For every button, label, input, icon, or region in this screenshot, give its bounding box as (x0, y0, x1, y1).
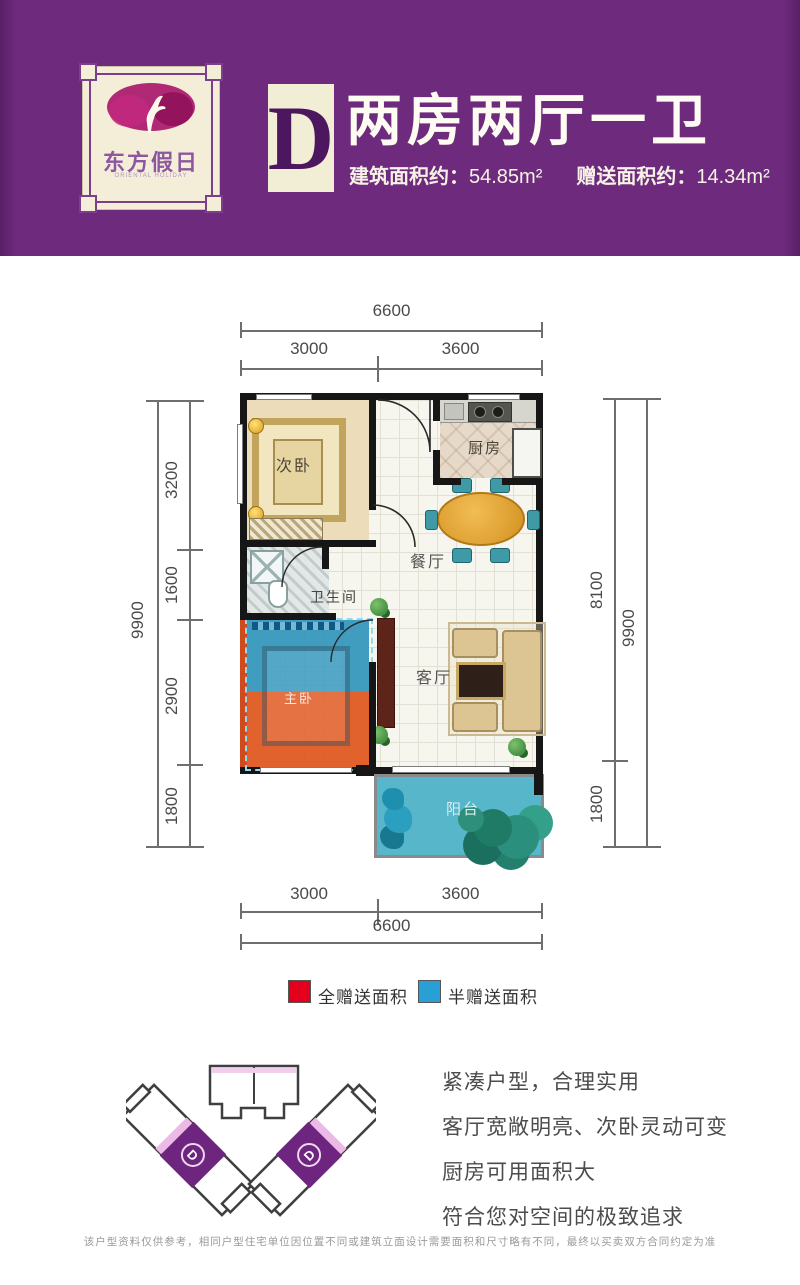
label-balcony: 阳台 (446, 798, 480, 819)
window (237, 424, 243, 504)
balcony-slider-door (392, 766, 510, 773)
wall (240, 540, 376, 547)
dim-top-left: 3000 (240, 339, 378, 359)
dim-tick (377, 356, 379, 382)
label-bedroom2: 次卧 (276, 452, 312, 476)
dim-left-seg2: 2900 (162, 636, 182, 756)
label-master: 主卧 (284, 688, 314, 707)
wall (433, 478, 461, 485)
stove-burner (492, 406, 504, 418)
dim-tick (602, 760, 628, 762)
window (260, 767, 352, 773)
dim-left-seg0: 3200 (162, 420, 182, 540)
sofa (502, 630, 542, 732)
building-key-plan: D D (126, 1050, 376, 1230)
dim-top-right: 3600 (378, 339, 543, 359)
tv-cabinet (377, 618, 395, 728)
dim-line (189, 400, 191, 848)
dim-line (614, 398, 616, 848)
dining-table (437, 492, 525, 546)
area-info: 建筑面积约：54.85m²赠送面积约：14.34m² (349, 160, 789, 189)
label-bathroom: 卫生间 (310, 587, 358, 607)
dim-tick (541, 360, 543, 376)
dim-line (646, 398, 648, 848)
wall (369, 393, 376, 510)
label-kitchen: 厨房 (468, 437, 502, 458)
dining-chair (425, 510, 438, 530)
logo-corner-ornament (205, 63, 223, 81)
armchair (452, 702, 498, 732)
dim-tick (177, 619, 203, 621)
dim-line (240, 330, 543, 332)
logo-corner-ornament (79, 195, 97, 213)
dim-bottom-total: 6600 (240, 916, 543, 936)
wall (240, 613, 336, 620)
gift-area-label: 赠送面积约： (576, 166, 696, 188)
dim-right-seg0: 8100 (587, 530, 607, 650)
logo-corner-ornament (205, 195, 223, 213)
unit-letter-badge: D (268, 84, 334, 192)
unit-type-title: 两房两厅一卫 (346, 76, 776, 157)
dim-line (240, 911, 543, 913)
wall (534, 767, 543, 795)
wardrobe (249, 518, 323, 540)
selling-point-line: 厨房可用面积大 (442, 1156, 762, 1186)
unit-letter: D (268, 85, 334, 191)
disclaimer-text: 该户型资料仅供参考，相同户型住宅单位因位置不同或建筑立面设计需要面积和尺寸略有不… (0, 1234, 800, 1249)
selling-point-line: 紧凑户型，合理实用 (442, 1066, 762, 1096)
legend-swatch-full-gift (288, 980, 311, 1003)
dim-tick (541, 934, 543, 950)
dim-line (240, 942, 543, 944)
armchair (452, 628, 498, 658)
dim-tick (146, 846, 204, 848)
label-living: 客厅 (416, 664, 452, 688)
dining-chair (527, 510, 540, 530)
dim-bottom-right: 3600 (378, 884, 543, 904)
wall (433, 393, 440, 421)
bedside-lamp (248, 418, 264, 434)
dim-line (157, 400, 159, 848)
dim-tick (240, 322, 242, 338)
dim-top-total: 6600 (240, 301, 543, 321)
dim-tick (177, 549, 203, 551)
fridge (512, 428, 542, 478)
window (468, 394, 520, 400)
label-dining: 餐厅 (410, 548, 446, 572)
header-banner: 东方假日 ORIENTAL HOLIDAY D 两房两厅一卫 建筑面积约：54.… (0, 0, 800, 256)
wall (356, 765, 376, 776)
dim-right-seg1: 1800 (587, 766, 607, 842)
dim-tick (146, 400, 204, 402)
dim-bottom-left: 3000 (240, 884, 378, 904)
brand-subtitle: ORIENTAL HOLIDAY (83, 173, 219, 179)
built-area-label: 建筑面积约： (349, 166, 469, 188)
toilet (268, 580, 288, 608)
dim-tick (603, 398, 661, 400)
brand-logo: 东方假日 ORIENTAL HOLIDAY (82, 66, 220, 210)
wall (502, 478, 543, 485)
gift-area-value: 14.34m² (696, 166, 769, 188)
balcony-plant (382, 788, 404, 810)
legend-label-full-gift: 全赠送面积 (318, 983, 408, 1008)
dim-left-seg3: 1800 (162, 768, 182, 844)
dining-chair (490, 548, 510, 563)
selling-point-line: 客厅宽敞明亮、次卧灵动可变 (442, 1111, 762, 1141)
selling-point-line: 符合您对空间的极致追求 (442, 1201, 762, 1231)
plant (370, 598, 388, 616)
dim-tick (177, 764, 203, 766)
stove-burner (474, 406, 486, 418)
floorplan-poster: 东方假日 ORIENTAL HOLIDAY D 两房两厅一卫 建筑面积约：54.… (0, 0, 800, 1285)
dim-tick (240, 934, 242, 950)
dim-right-total: 9900 (619, 568, 639, 688)
legend-label-half-gift: 半赠送面积 (448, 983, 538, 1008)
plant (508, 738, 526, 756)
window (256, 394, 312, 400)
logo-corner-ornament (79, 63, 97, 81)
wall (369, 662, 376, 774)
dim-left-seg1: 1600 (162, 553, 182, 617)
legend-swatch-half-gift (418, 980, 441, 1003)
shower (250, 550, 284, 584)
built-area-value: 54.85m² (469, 166, 542, 188)
dim-left-total: 9900 (128, 560, 148, 680)
dim-line (240, 368, 543, 370)
tree-crane-icon (101, 79, 201, 141)
selling-points: 紧凑户型，合理实用 客厅宽敞明亮、次卧灵动可变 厨房可用面积大 符合您对空间的极… (442, 1066, 762, 1246)
dim-tick (541, 322, 543, 338)
dining-chair (452, 548, 472, 563)
wall (322, 547, 329, 569)
coffee-table (456, 662, 506, 700)
dim-tick (603, 846, 661, 848)
kitchen-sink (444, 403, 464, 420)
dim-tick (240, 360, 242, 376)
